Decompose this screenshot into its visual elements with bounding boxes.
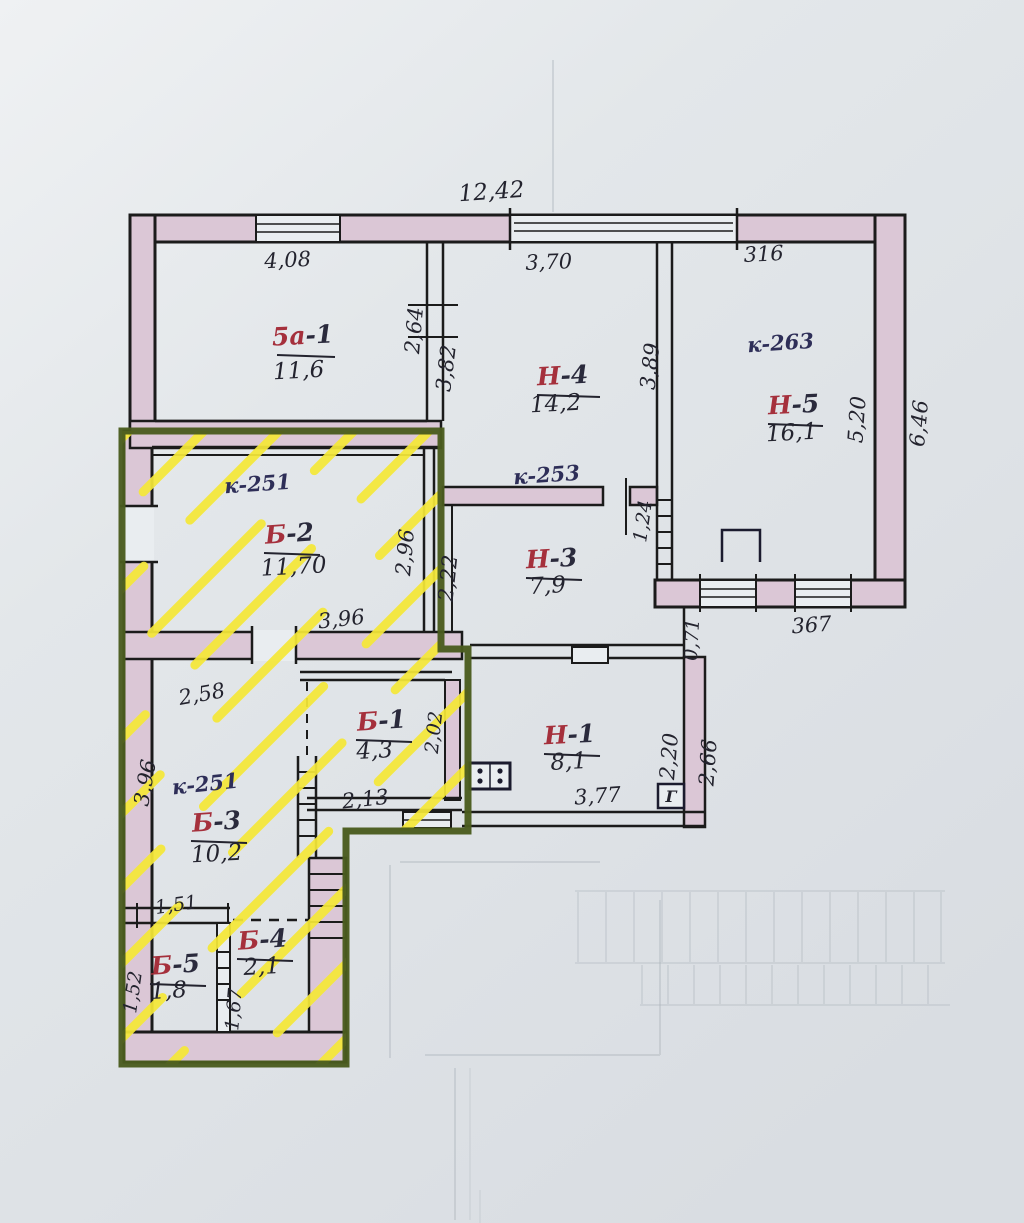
room-n4-code: Н-4 — [535, 360, 589, 392]
room-b3-code: Б-3 — [190, 805, 242, 837]
dim-296: 2,96 — [391, 528, 419, 578]
dim-202: 2,02 — [421, 710, 447, 755]
room-n3-code: Н-3 — [524, 543, 578, 575]
room-b5-code: Б-5 — [149, 948, 201, 980]
dim-n1-bottom: 3,77 — [573, 782, 622, 809]
dim-b2-bottom: 3,96 — [317, 605, 366, 634]
room-b4-code: Б-4 — [236, 923, 288, 955]
room-b2-code: Б-2 — [263, 517, 315, 549]
dim-646: 6,46 — [905, 399, 933, 448]
room-n1-area: 8,1 — [550, 748, 588, 776]
room-n4-area: 14,2 — [529, 390, 582, 419]
room-5a1-code: 5а-1 — [271, 319, 334, 351]
room-b1-code: Б-1 — [355, 704, 407, 736]
room-n5-area: 16,1 — [765, 419, 818, 448]
dim-389: 3,89 — [636, 342, 665, 391]
gas-symbol-label: Г — [664, 787, 677, 806]
dim-b1-bottom: 2,13 — [340, 785, 390, 814]
dim-520: 5,20 — [843, 395, 870, 443]
room-b2-area: 11,70 — [260, 552, 327, 581]
dim-top-right: 316 — [743, 241, 784, 267]
room-b3-area: 10,2 — [190, 840, 243, 869]
room-b2-knumber: к-251 — [223, 469, 291, 499]
floor-plan-photo: Г 12,42 4,08 3,70 316 2,64 3,82 3,89 5,2… — [0, 0, 1024, 1223]
dim-071: 0,71 — [680, 618, 704, 661]
floor-plan: Г 12,42 4,08 3,70 316 2,64 3,82 3,89 5,2… — [0, 0, 1024, 1223]
dim-top-left: 4,08 — [263, 247, 312, 273]
dim-top-mid: 3,70 — [525, 249, 573, 275]
dim-222: 2,22 — [434, 554, 463, 604]
room-n5-knumber: к-263 — [746, 328, 814, 358]
dim-n5-bottom: 367 — [791, 612, 833, 639]
room-b1-area: 4,3 — [355, 737, 394, 765]
room-n5-code: Н-5 — [766, 389, 820, 421]
room-b5-area: 1,8 — [150, 977, 188, 1005]
room-5a1-area: 11,6 — [272, 357, 325, 386]
dim-264: 2,64 — [400, 306, 428, 356]
room-n3-knumber: к-253 — [512, 460, 580, 490]
dim-220: 2,20 — [655, 732, 683, 782]
room-b4-area: 2,1 — [242, 953, 281, 981]
dim-266: 2,66 — [694, 738, 721, 787]
room-n3-area: 7,9 — [529, 572, 567, 600]
dim-b4-inner: 1,67 — [221, 987, 247, 1032]
dim-total-top: 12,42 — [458, 177, 526, 208]
room-n1-code: Н-1 — [542, 719, 596, 751]
